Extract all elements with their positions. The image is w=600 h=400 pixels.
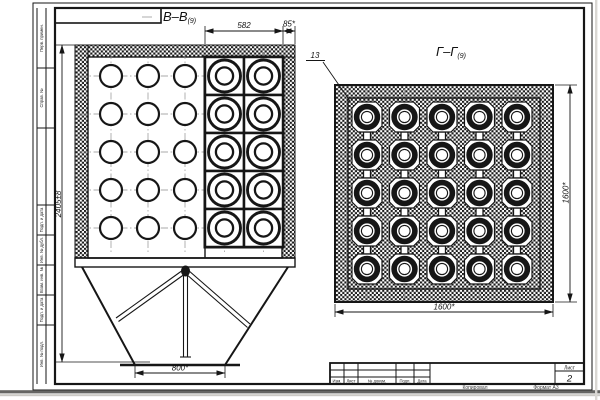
- gg-link: [514, 132, 521, 140]
- gg-element: [352, 254, 382, 284]
- bb-cassette-cell: [205, 133, 244, 171]
- dim-582-label: 582: [237, 21, 251, 30]
- gg-element: [427, 216, 457, 246]
- gg-element: [427, 254, 457, 284]
- gg-element: [352, 216, 382, 246]
- gg-link: [514, 246, 521, 254]
- gg-element: [465, 254, 495, 284]
- tb-col-podp: Подп.: [399, 379, 410, 384]
- gg-element: [352, 140, 382, 170]
- bb-hole: [137, 179, 159, 201]
- gg-element: [502, 102, 532, 132]
- view-bb: В–В(9): [54, 9, 296, 378]
- bb-cassette-cell: [244, 171, 283, 209]
- tb-col-data: Дата: [417, 379, 427, 384]
- gg-element: [502, 254, 532, 284]
- gg-link: [364, 208, 371, 216]
- bb-hole: [137, 103, 159, 125]
- tb-col-docnum: № докум.: [368, 379, 386, 384]
- bb-hole: [174, 103, 196, 125]
- bb-cassette-cell: [244, 133, 283, 171]
- gg-link: [476, 246, 483, 254]
- gg-link: [401, 246, 408, 254]
- bb-hole: [100, 141, 122, 163]
- gg-link: [364, 132, 371, 140]
- bb-cassette-cell: [244, 95, 283, 133]
- stamp-inv-dubl: Инв. № дубл.: [39, 237, 44, 263]
- gg-element: [427, 102, 457, 132]
- title-block: Изм. Лист № докум. Подп. Дата Лист 2: [330, 363, 584, 385]
- hopper: [75, 258, 295, 365]
- gg-link: [401, 132, 408, 140]
- stamp-sprav-no: Справ. №: [39, 88, 44, 108]
- gg-link: [476, 170, 483, 178]
- bb-left-wall: [75, 45, 88, 258]
- bb-hole: [174, 65, 196, 87]
- gg-element: [390, 140, 420, 170]
- gg-element: [390, 178, 420, 208]
- tb-col-izm: Изм.: [333, 379, 342, 384]
- gg-element: [502, 216, 532, 246]
- gg-link: [401, 170, 408, 178]
- gg-link: [476, 132, 483, 140]
- gg-element: [465, 178, 495, 208]
- bb-hole: [174, 179, 196, 201]
- gg-element-grid: [352, 102, 532, 284]
- gg-link: [439, 246, 446, 254]
- bb-hole-grid: [100, 65, 196, 239]
- gg-link: [439, 132, 446, 140]
- drawing-sheet: Перв. примен. Справ. № Подп. и дата Инв.…: [0, 0, 600, 400]
- tb-sheet-label: Лист: [564, 366, 576, 372]
- stamp-podp-data-2: Подп. и дата: [39, 297, 44, 322]
- gg-element: [352, 178, 382, 208]
- gg-element: [390, 216, 420, 246]
- gg-link: [514, 170, 521, 178]
- bb-hole: [100, 217, 122, 239]
- gg-link: [401, 208, 408, 216]
- gg-element: [390, 102, 420, 132]
- section-label-bb: В–В(9): [163, 9, 196, 25]
- dim-85-label: 85*: [283, 20, 296, 29]
- blueprint-canvas: Перв. примен. Справ. № Подп. и дата Инв.…: [0, 0, 600, 400]
- designation-box: [55, 8, 161, 23]
- bb-hole: [174, 217, 196, 239]
- gg-link: [439, 208, 446, 216]
- format-label: Формат А3: [533, 385, 558, 391]
- gg-element: [502, 178, 532, 208]
- gg-link: [439, 170, 446, 178]
- dim-2405-label: 2405±8: [54, 190, 63, 218]
- right-scan-shadow: [595, 0, 597, 400]
- gg-element: [427, 140, 457, 170]
- stamp-podp-data-1: Подп. и дата: [39, 207, 44, 232]
- bb-hole: [100, 103, 122, 125]
- stamp-inv-podl: Инв. № подл.: [39, 341, 44, 367]
- dim-800-label: 800*: [172, 364, 189, 373]
- gg-link: [364, 170, 371, 178]
- bb-cassette-cell: [244, 209, 283, 247]
- copied-label: Копировал: [462, 385, 487, 391]
- bottom-scan-shadow: [0, 394, 600, 396]
- bb-hole: [137, 65, 159, 87]
- bb-cassette-cell: [205, 171, 244, 209]
- tb-col-list: Лист: [346, 379, 355, 384]
- gg-element: [465, 102, 495, 132]
- bb-cassette-block: [205, 57, 283, 247]
- hopper-pivot: [181, 266, 190, 277]
- tb-sheet-number: 2: [566, 374, 573, 385]
- gg-element: [502, 140, 532, 170]
- side-stamp-column: Перв. примен. Справ. № Подп. и дата Инв.…: [37, 8, 55, 384]
- gg-link: [364, 246, 371, 254]
- gg-element: [427, 178, 457, 208]
- section-label-gg: Г–Г(9): [436, 44, 466, 60]
- bb-hole: [174, 141, 196, 163]
- dim-gg-width-label: 1600*: [434, 303, 456, 312]
- bb-cassette-cell: [205, 209, 244, 247]
- bb-cassette-cell: [205, 95, 244, 133]
- bb-hole: [137, 141, 159, 163]
- bb-hole: [137, 217, 159, 239]
- stamp-perv-primen: Перв. примен.: [39, 24, 44, 52]
- stamp-vzam-inv: Взам. инв. №: [39, 267, 44, 293]
- bb-hole: [100, 65, 122, 87]
- gg-link: [476, 208, 483, 216]
- leader-13-label: 13: [311, 51, 320, 60]
- bb-cassette-cells: [205, 57, 283, 247]
- bb-cassette-cell: [244, 57, 283, 95]
- gg-element: [352, 102, 382, 132]
- bb-cassette-cell: [205, 57, 244, 95]
- dim-gg-height-label: 1600*: [562, 182, 571, 204]
- bottom-scan-edge: [0, 390, 600, 393]
- gg-element: [465, 216, 495, 246]
- gg-element: [390, 254, 420, 284]
- gg-element: [465, 140, 495, 170]
- view-gg: Г–Г(9) 13 1600* 1600*: [306, 44, 577, 317]
- hopper-braces: [116, 270, 250, 357]
- gg-link: [514, 208, 521, 216]
- bb-hole: [100, 179, 122, 201]
